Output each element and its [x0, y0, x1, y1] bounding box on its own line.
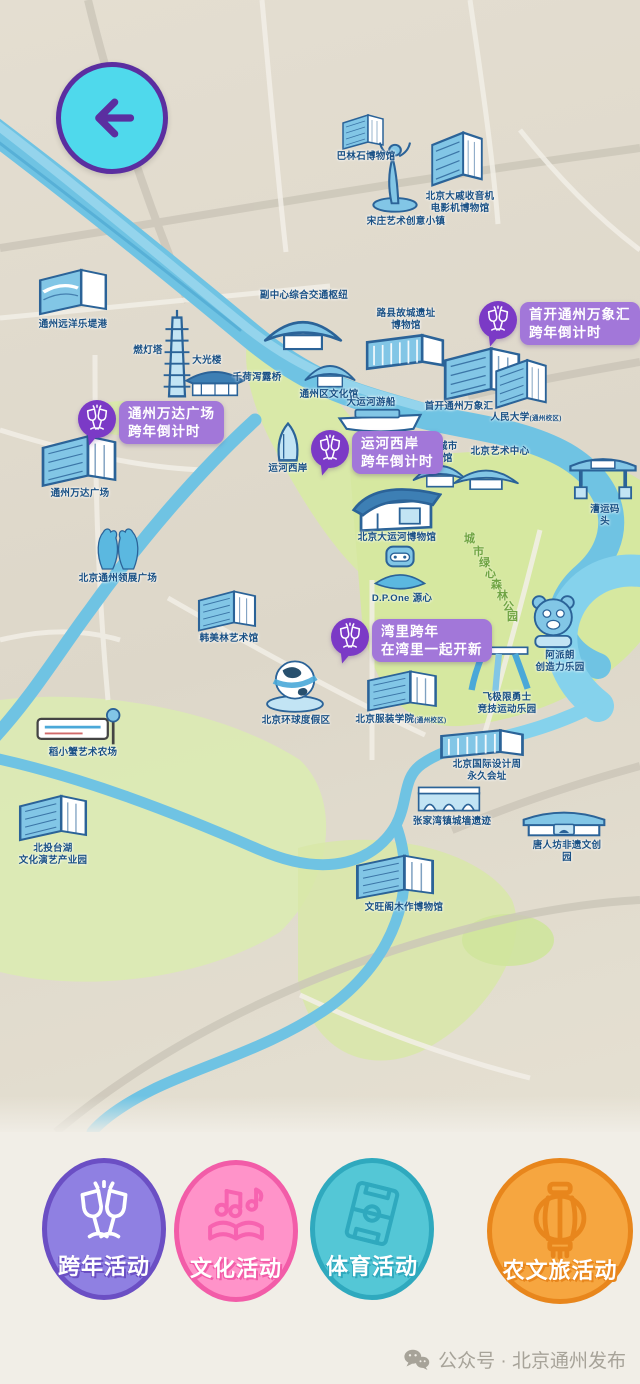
tent-icon — [450, 458, 522, 494]
landmark-daguang-tower-label: 大光楼 — [192, 355, 221, 367]
landmark-apailang-creativity-park-label: 阿派朗 创造力乐园 — [535, 650, 584, 674]
landmark-tangrenfang-heritage-park-label: 唐人坊非遗文创园 — [531, 840, 604, 864]
hands-icon — [92, 524, 144, 574]
landmark-caoyun-wharf-label: 漕运码头 — [588, 504, 623, 528]
building-icon — [360, 668, 444, 714]
badge-canal-west-countdown: 运河西岸 跨年倒计时 — [311, 430, 443, 474]
category-newyear-label: 跨年活动 — [47, 1249, 161, 1281]
landmark-ocean-ledigang-label: 通州远洋乐堤港 — [39, 319, 108, 331]
landmark-beijing-arts-center-label: 北京艺术中心 — [471, 446, 530, 458]
building-icon — [426, 128, 488, 190]
bridge-icon — [416, 782, 482, 816]
museum-icon — [350, 474, 442, 534]
champagne-icon — [311, 430, 349, 468]
category-sports[interactable]: 体育活动 — [310, 1158, 434, 1300]
landmark-shoukai-wanxianghui-label: 首开通州万象汇 — [425, 401, 494, 413]
category-sports-label: 体育活动 — [315, 1249, 429, 1281]
badge-wanli-newyear-label: 湾里跨年 在湾里一起开新 — [372, 619, 492, 662]
sign-icon — [34, 708, 124, 748]
champagne-icon — [331, 618, 369, 656]
building-icon — [348, 852, 442, 902]
badge-wanda-countdown: 通州万达广场 跨年倒计时 — [78, 400, 224, 444]
robot-icon — [366, 544, 434, 594]
landmark-feijixian-warrior-sports-park-label: 飞极限勇士 竞技运动乐园 — [478, 692, 537, 716]
watermark: 公众号 · 北京通州发布 — [403, 1346, 626, 1373]
landmark-universal-resort-label: 北京环球度假区 — [262, 715, 331, 727]
landmark-daoxiaoxie-art-farm-label: 稻小蟹艺术农场 — [49, 747, 118, 759]
landmark-hanmeilin-art-museum-label: 韩美林艺术馆 — [200, 633, 259, 645]
landmark-wenwangge-woodwork-museum-label: 文旺阁木作博物馆 — [365, 902, 443, 914]
landmark-bift-label: 北京服装学院(通州校区) — [356, 714, 447, 726]
activity-map[interactable]: 巴林石博物馆北京大戚收音机 电影机博物馆宋庄艺术创意小镇通州远洋乐堤港副中心综合… — [0, 0, 640, 1132]
landmark-subcenter-transport-hub-label: 副中心综合交通枢纽 — [260, 290, 348, 302]
back-arrow-icon — [79, 85, 145, 151]
landmark-zhangjiawan-wall-ruins-label: 张家湾镇城墙遗迹 — [413, 816, 491, 828]
music-book-icon — [202, 1181, 271, 1250]
landmark-beitou-taihu-performing-arts-park-label: 北投台湖 文化演艺产业园 — [19, 843, 88, 867]
tent-icon — [302, 352, 358, 392]
tent-icon — [260, 304, 346, 356]
badge-canal-west-countdown-label: 运河西岸 跨年倒计时 — [352, 431, 443, 474]
back-button[interactable] — [56, 62, 168, 174]
landmark-wanda-plaza-label: 通州万达广场 — [51, 488, 110, 500]
landmark-dpone-yuanxin-label: D.P.One 源心 — [372, 593, 432, 605]
lantern-icon — [519, 1179, 601, 1261]
forest-park-label-char: 园 — [507, 608, 518, 624]
badge-wanxianghui-countdown: 首开通州万象汇 跨年倒计时 — [479, 301, 640, 345]
watermark-label: 公众号 · 北京通州发布 — [438, 1346, 626, 1373]
landmark-randeng-pagoda-label: 燃灯塔 — [133, 345, 162, 357]
category-culture[interactable]: 文化活动 — [174, 1160, 298, 1302]
category-newyear[interactable]: 跨年活动 — [42, 1158, 166, 1300]
champagne-icon — [78, 400, 116, 438]
building-icon — [192, 588, 262, 634]
landmark-renmin-university-label: 人民大学(通州校区) — [490, 412, 561, 424]
landmark-radio-film-museum-label: 北京大戚收音机 电影机博物馆 — [426, 191, 495, 215]
statue-icon — [370, 138, 420, 214]
landmark-link-plaza-label: 北京通州领展广场 — [79, 573, 157, 585]
landmark-qianhexielu-bridge-label: 千荷泻露桥 — [232, 372, 281, 384]
longbox-icon — [436, 726, 528, 762]
category-agritourism-label: 农文旅活动 — [492, 1253, 628, 1285]
landmark-grand-canal-cruise-label: 大运河游船 — [346, 397, 395, 409]
badge-wanda-countdown-label: 通州万达广场 跨年倒计时 — [119, 401, 224, 444]
landmark-luxian-ruins-museum-label: 路县故城遗址 博物馆 — [377, 308, 436, 332]
wavebuilding-icon — [32, 266, 114, 318]
gate-icon — [566, 448, 640, 504]
category-agritourism[interactable]: 农文旅活动 — [487, 1158, 633, 1304]
landmark-songzhuang-art-town-label: 宋庄艺术创意小镇 — [367, 216, 445, 228]
champagne-icon — [479, 301, 517, 339]
category-culture-label: 文化活动 — [179, 1251, 293, 1283]
globe-icon — [264, 656, 326, 716]
landmark-canal-west-bank-label: 运河西岸 — [268, 463, 307, 475]
landmark-renmin-university-suffix: (通州校区) — [530, 415, 562, 422]
badge-wanxianghui-countdown-label: 首开通州万象汇 跨年倒计时 — [520, 302, 640, 345]
champagne-icon — [70, 1179, 139, 1248]
pavilioncurve-icon — [522, 804, 606, 840]
badge-wanli-newyear: 湾里跨年 在湾里一起开新 — [331, 618, 492, 662]
building-icon — [12, 792, 94, 844]
screen: 巴林石博物馆北京大戚收音机 电影机博物馆宋庄艺术创意小镇通州远洋乐堤港副中心综合… — [0, 0, 640, 1384]
landmark-bift-suffix: (通州校区) — [414, 717, 446, 724]
wechat-icon — [403, 1348, 431, 1371]
landmark-balinshi-museum-label: 巴林石博物馆 — [337, 151, 396, 163]
sport-field-icon — [338, 1179, 407, 1248]
landmark-grand-canal-museum-label: 北京大运河博物馆 — [358, 532, 436, 544]
sail-icon — [262, 420, 314, 464]
landmark-design-week-site-label: 北京国际设计周 永久会址 — [453, 759, 522, 783]
building-icon — [490, 356, 552, 412]
map-fade — [0, 1096, 640, 1136]
